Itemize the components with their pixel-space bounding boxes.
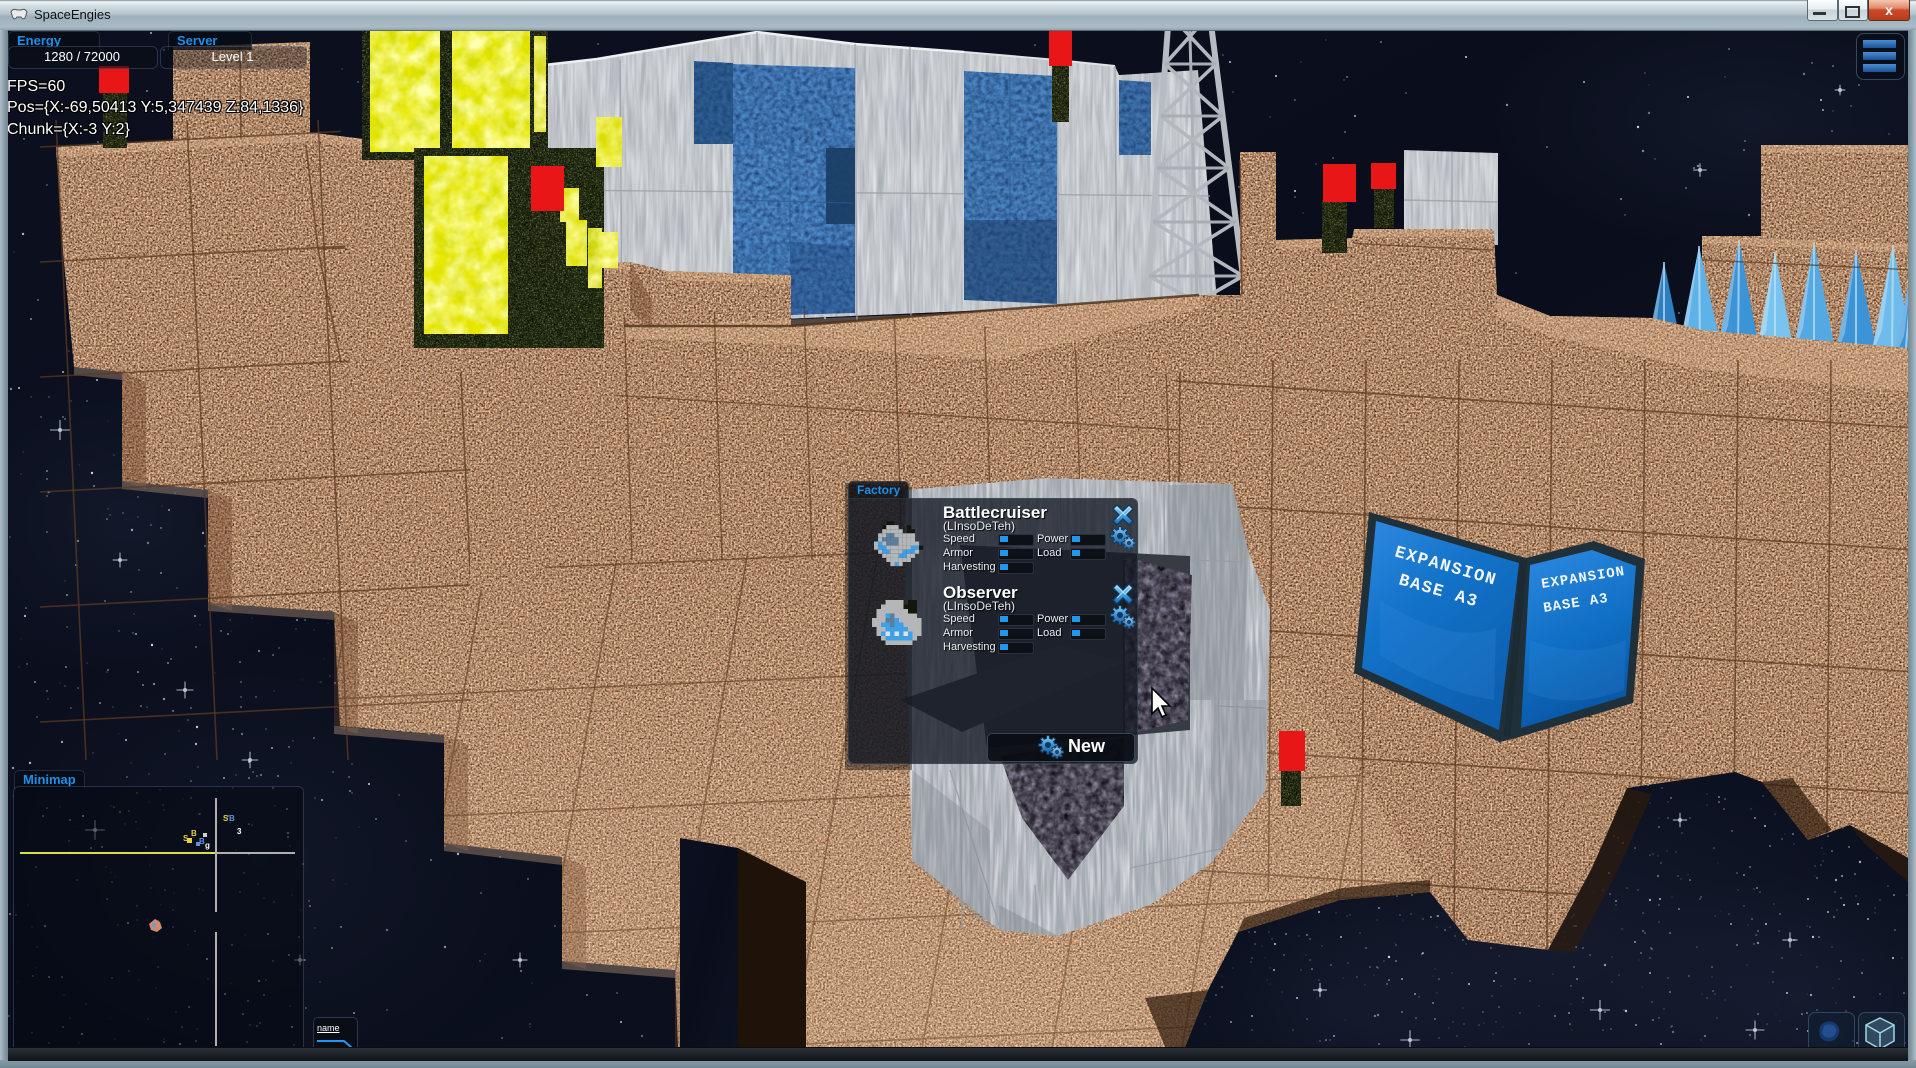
svg-text:3: 3 (237, 827, 242, 836)
svg-text:B: B (191, 829, 197, 838)
svg-text:g: g (205, 841, 210, 850)
svg-text:B: B (229, 814, 235, 823)
